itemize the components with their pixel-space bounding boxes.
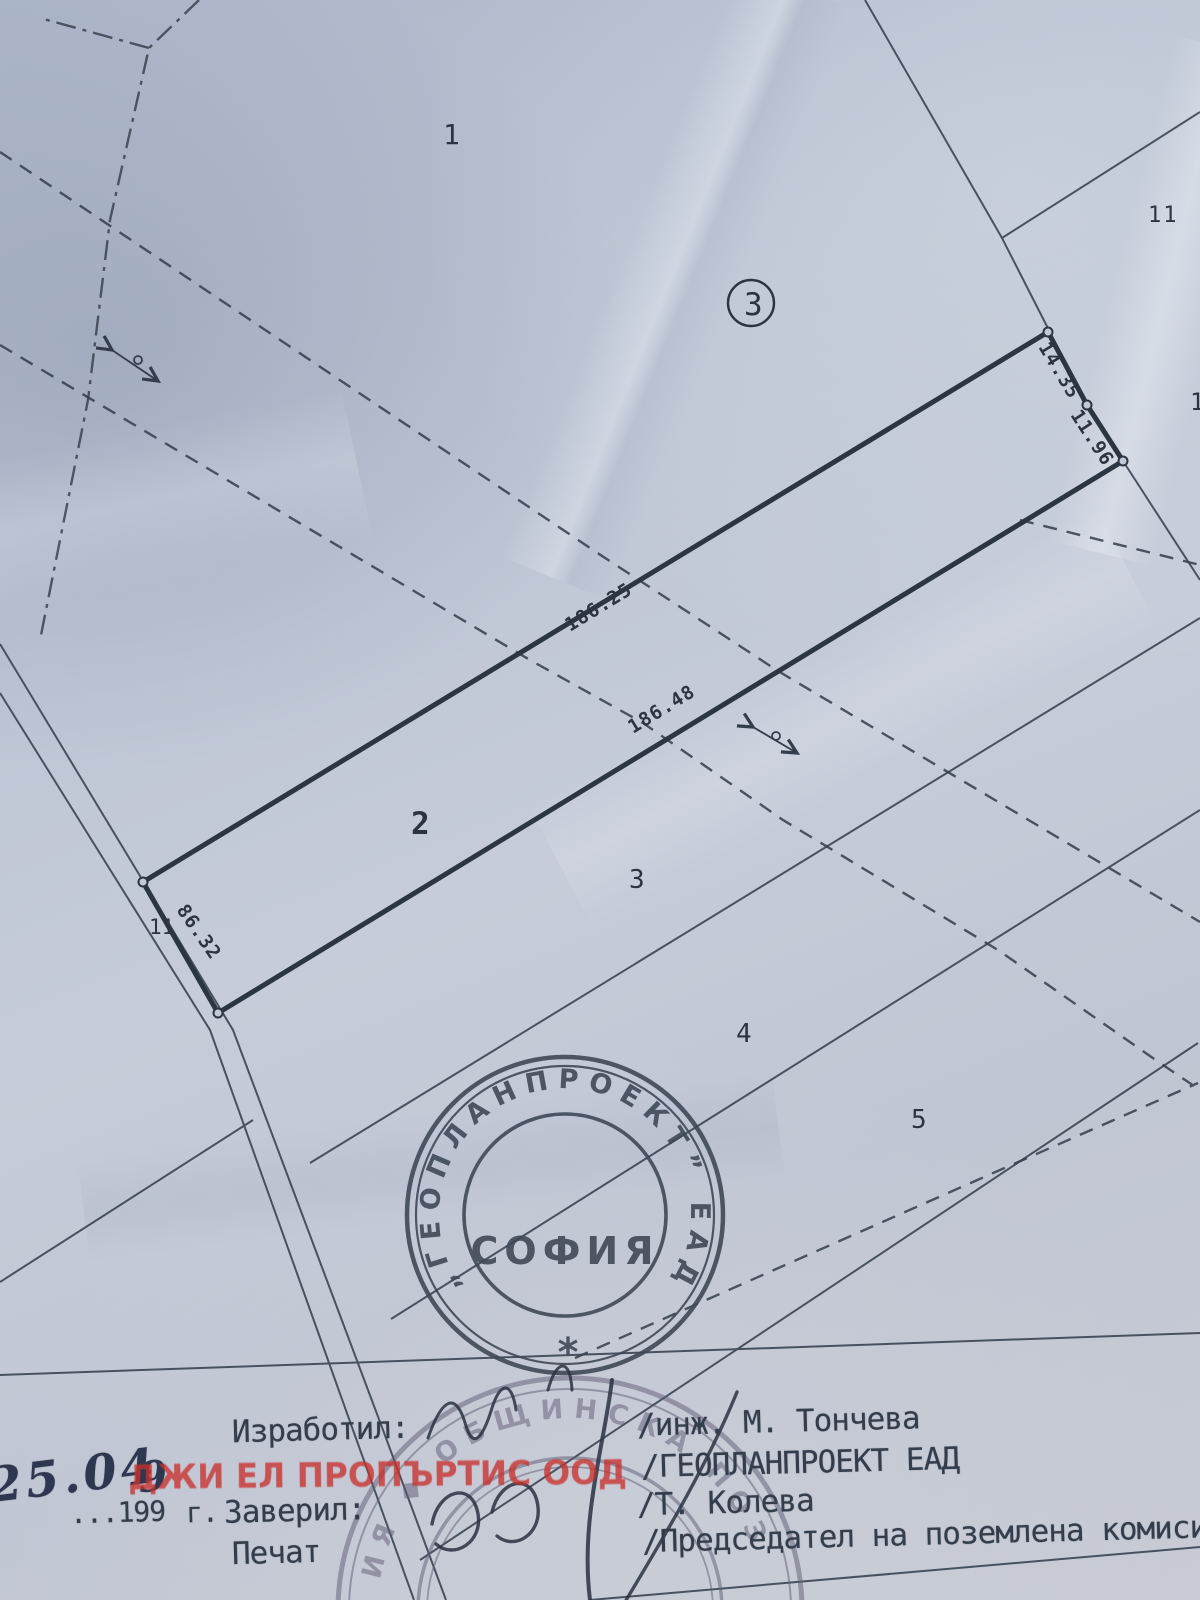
dashed-line-right: [1020, 520, 1200, 565]
dashed-boundary-lines: [0, 152, 1200, 1358]
boundary-below-3-left: [0, 1120, 253, 1282]
highlighted-parcel-2: [139, 328, 1128, 1018]
parcel-label-3: 3: [629, 865, 645, 895]
parcel-label-circled-3: 3: [744, 287, 763, 323]
parcel-label-5: 5: [911, 1105, 927, 1135]
direction-arrow-icon: [753, 727, 797, 753]
direction-arrow-icon: [112, 350, 158, 381]
seal-center-text: СОФИЯ: [471, 1229, 660, 1273]
photographed-cadastral-plan: 1 11 3 2 3 4 5 1 186.25 186.48 14.35 11.…: [0, 0, 1200, 1600]
block-boundary-chain-line: [40, 0, 199, 640]
parcel-label-2-bold: 2: [411, 806, 430, 842]
parcel-label-right-partial: 1: [1190, 388, 1200, 416]
parcel-label-1: 1: [443, 118, 460, 151]
dimension-label-bottom-edge: 186.48: [624, 681, 699, 739]
dashed-line-lower: [0, 345, 1200, 1090]
dimension-label-top-edge: 186.25: [561, 579, 636, 637]
dimension-label-right-upper: 14.35: [1034, 338, 1085, 403]
made-by-label: Изработил:: [232, 1410, 410, 1451]
map-labels: 1 11 3 2 3 4 5 1 186.25 186.48 14.35 11.…: [149, 118, 1200, 1135]
engineer-name: /инж. М. Тончева: [637, 1400, 920, 1443]
circled-parcel-label-3: 3: [728, 280, 774, 326]
certified-by-label: Заверил:: [224, 1491, 366, 1531]
parcel-label-11: 11: [1148, 203, 1179, 228]
dimension-label-left-extra: 11: [149, 915, 174, 939]
dimension-label-left-edge: 86.32: [172, 900, 226, 964]
geoplanproekt-sofia-round-seal: „ГЕОПЛАНПРОЕКТ” ЕАД СОФИЯ *: [407, 1057, 723, 1376]
printed-date-suffix: г.: [186, 1496, 219, 1530]
certifier-name: /Т. Колева: [637, 1483, 815, 1524]
parcel-2-outline: [143, 332, 1123, 1013]
survey-vertex-markers: [139, 328, 1128, 1018]
dashed-line-upper: [0, 152, 1200, 922]
boundary-right-extension: [1123, 461, 1200, 580]
parcel-label-4: 4: [736, 1019, 752, 1049]
cadastral-map-drawing: 1 11 3 2 3 4 5 1 186.25 186.48 14.35 11.…: [0, 0, 1200, 1600]
agency-watermark: ДЖИ ЕЛ ПРОПЪРТИС ООД: [128, 1453, 627, 1498]
seal-label: Печат: [232, 1534, 321, 1572]
